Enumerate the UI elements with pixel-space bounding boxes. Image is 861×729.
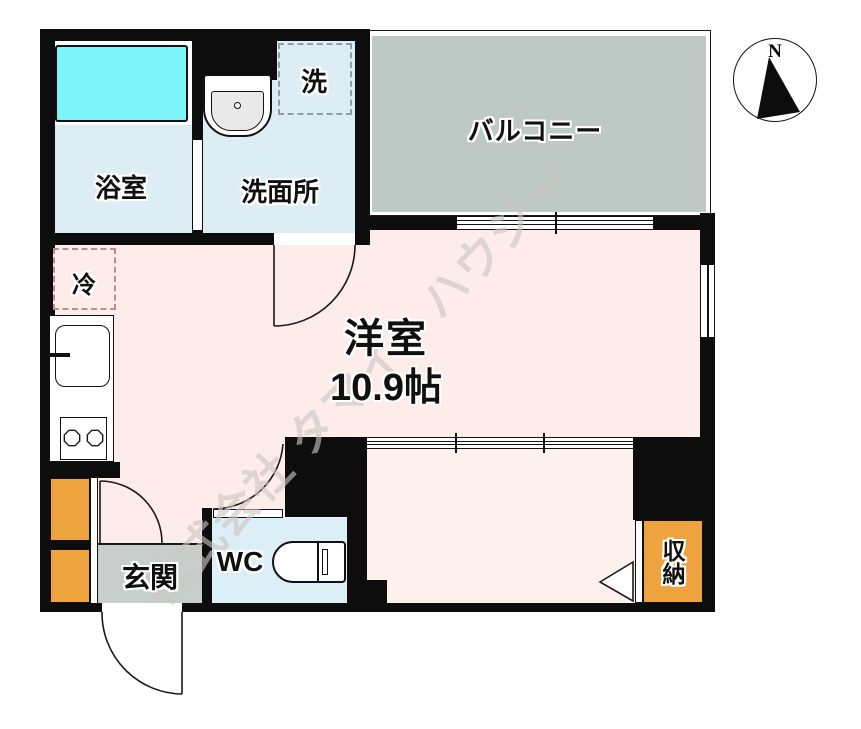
toilet-icon xyxy=(272,541,346,583)
wall-washroom-balcony xyxy=(355,29,370,245)
wall-balcony-sill-right xyxy=(653,216,702,230)
alcove-floor xyxy=(367,449,633,603)
washbasin-faucet-icon xyxy=(234,102,241,109)
bathroom-label: 浴室 xyxy=(61,168,181,205)
shoe-cabinet-lower xyxy=(50,549,90,603)
wall-kitchen-end xyxy=(55,462,120,478)
washbasin-bowl xyxy=(211,91,264,131)
washroom-label: 洗面所 xyxy=(200,172,360,209)
stove-icon xyxy=(60,417,107,460)
compass: N xyxy=(733,38,817,122)
toilet-tank-line xyxy=(317,543,319,581)
wc-label: WC xyxy=(210,546,270,578)
main-room-size-label: 10.9帖 xyxy=(286,356,486,411)
balcony-label: バルコニー xyxy=(425,111,645,148)
wall-balcony-sill-left xyxy=(355,216,457,230)
kitchen-faucet-icon xyxy=(46,353,70,357)
shoe-cabinet-upper xyxy=(50,478,90,541)
compass-north-label: N xyxy=(734,42,816,61)
alcove-sliding-door xyxy=(367,437,633,449)
closet-door-strip xyxy=(635,520,643,603)
toilet-handle xyxy=(322,549,328,575)
alcove-door-tick-1 xyxy=(455,433,457,453)
entrance-label: 玄関 xyxy=(100,556,200,596)
floor-plan: N 株式会社 タマイ・ハウジー 浴室 洗面所 洗 バルコニー 洋室 10.9帖 … xyxy=(0,0,861,729)
storage-label: 収納 xyxy=(659,526,685,598)
alcove-door-tick-2 xyxy=(543,433,545,453)
right-wall-window xyxy=(700,265,715,337)
fridge-space-label: 冷 xyxy=(64,265,104,300)
wall-sink-pier xyxy=(192,29,277,80)
wall-closet-block xyxy=(633,437,705,520)
washroom-door-opening xyxy=(274,233,355,245)
wall-wc-right xyxy=(347,517,367,603)
wall-wc-step xyxy=(365,580,387,603)
shoe-cabinet-door xyxy=(90,478,98,603)
bathtub-icon xyxy=(55,45,188,122)
washer-space-label: 洗 xyxy=(294,62,334,99)
